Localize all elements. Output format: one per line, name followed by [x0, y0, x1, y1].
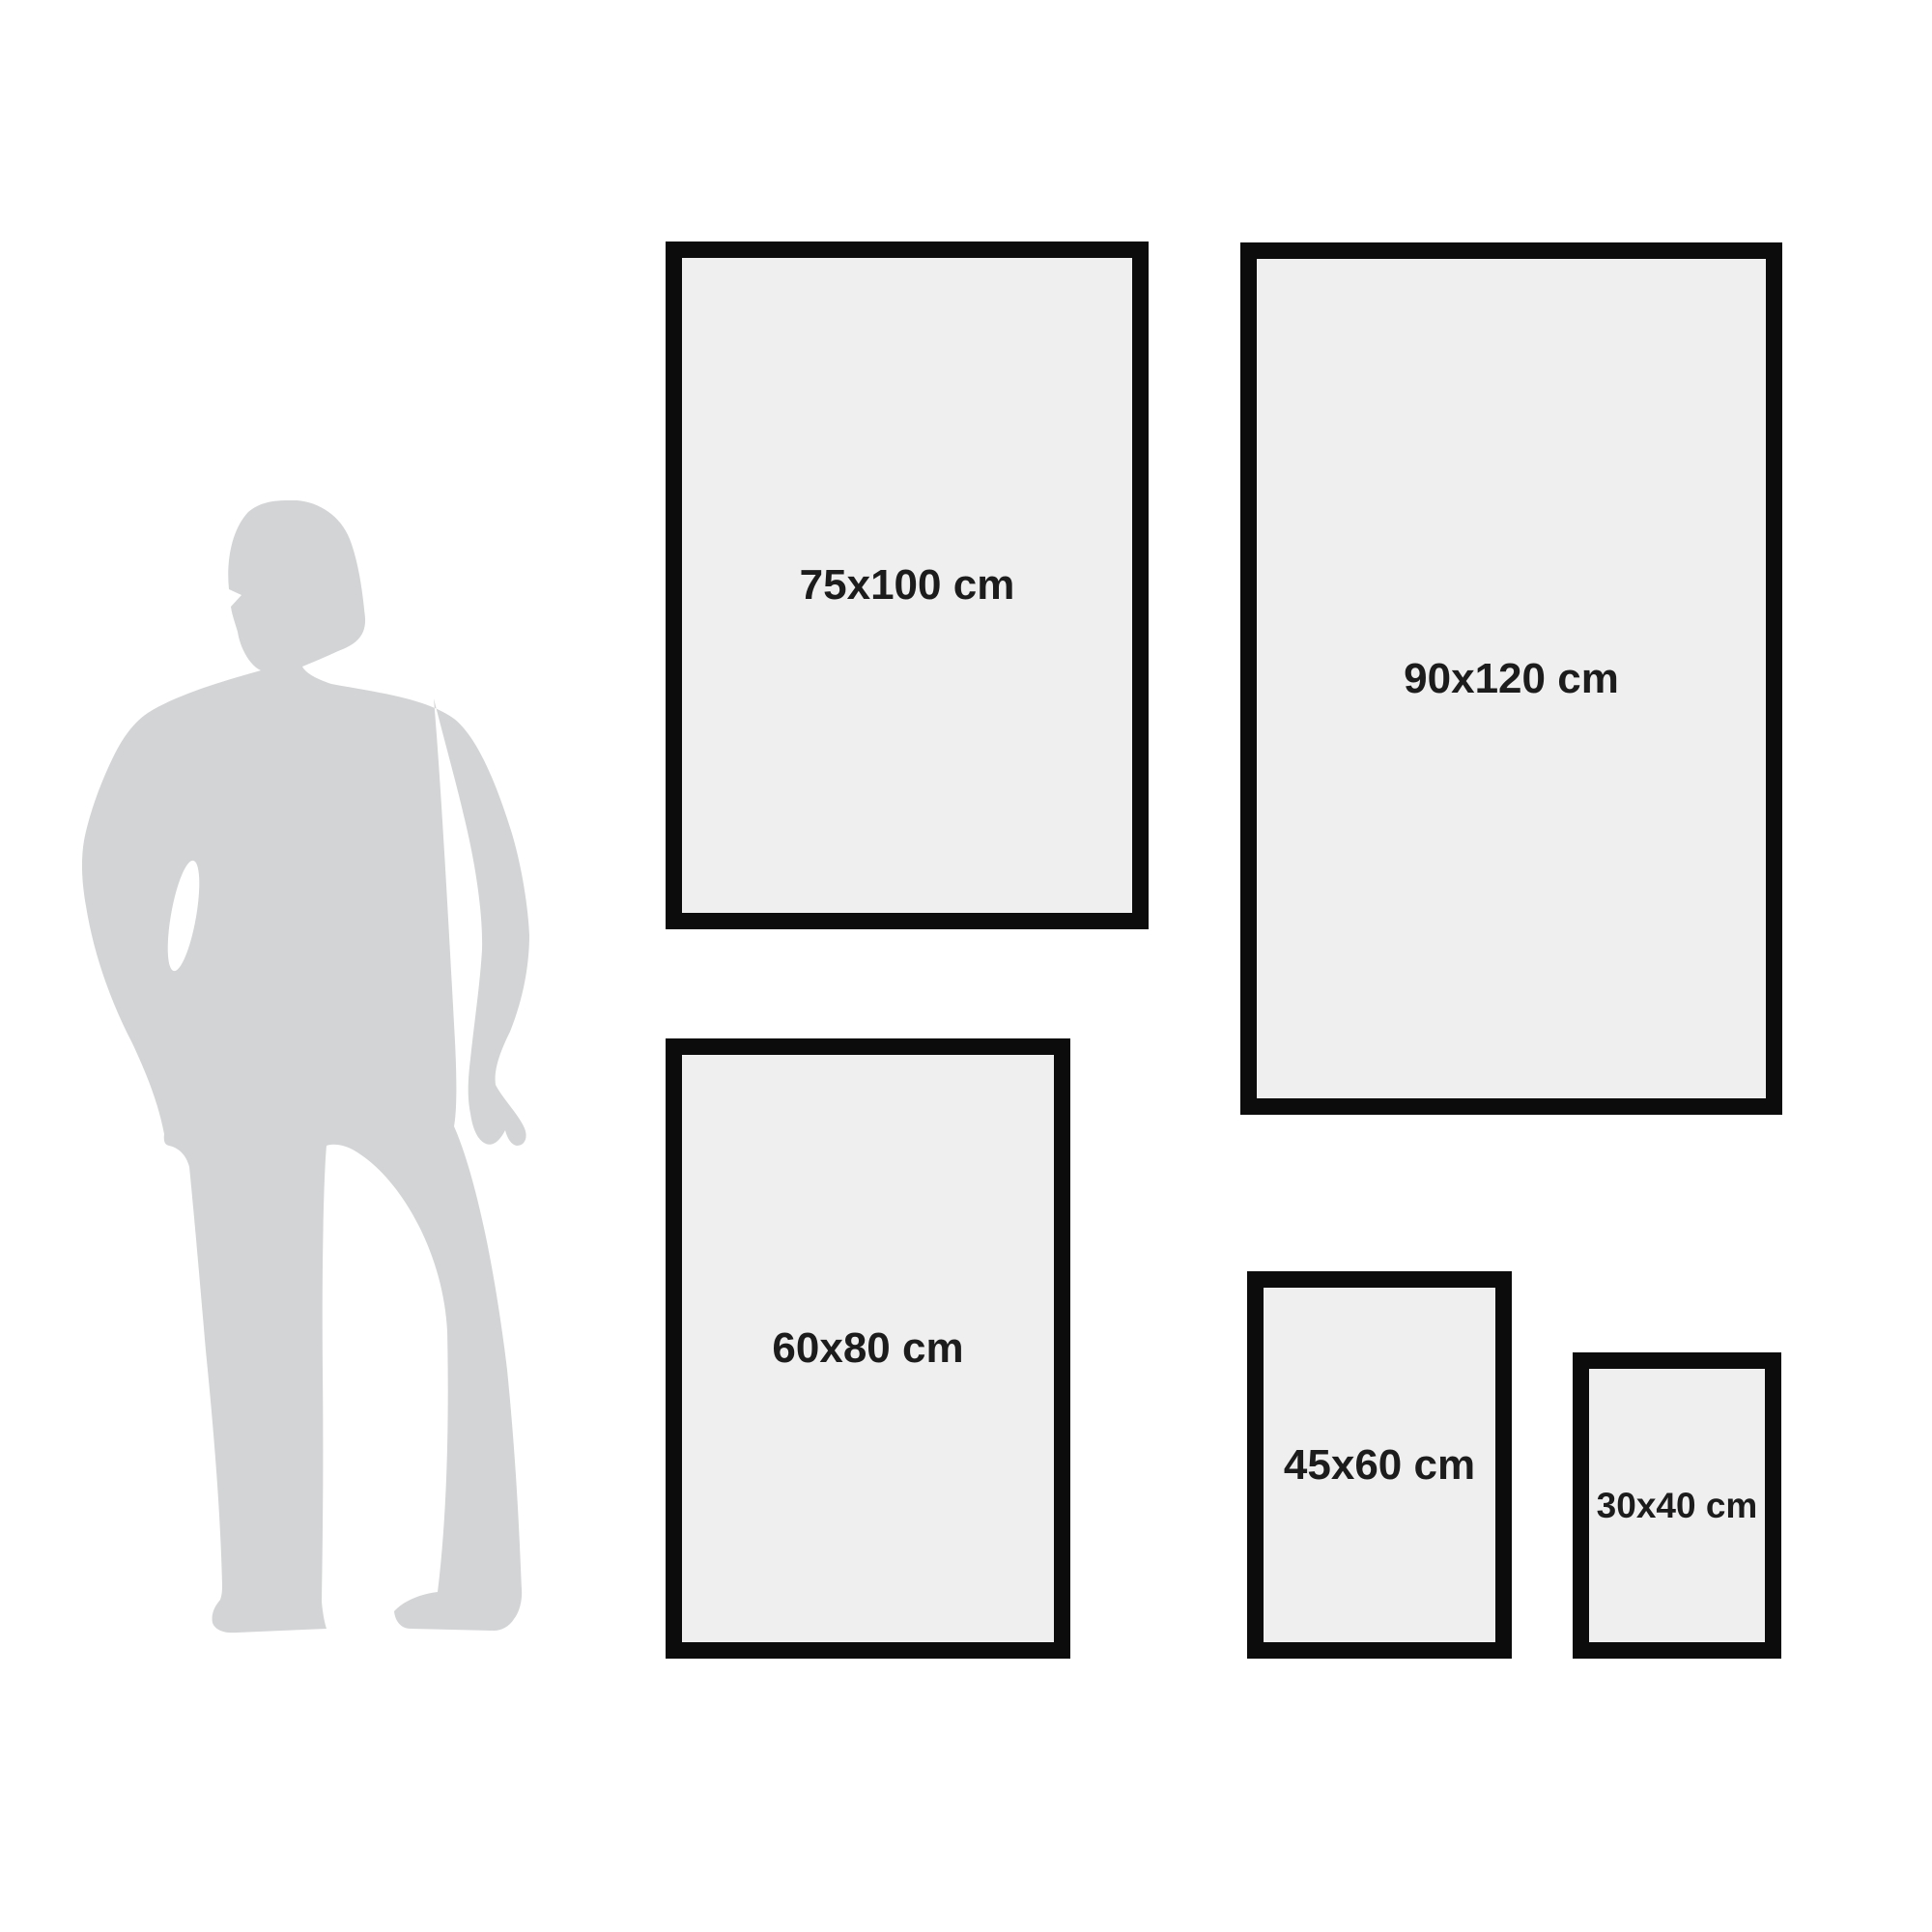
frame-size-label: 45x60 cm [1284, 1441, 1475, 1490]
frame-60x80: 60x80 cm [666, 1038, 1070, 1659]
frame-size-label: 90x120 cm [1404, 655, 1619, 703]
frame-30x40: 30x40 cm [1573, 1352, 1781, 1659]
person-silhouette [82, 500, 529, 1634]
frame-size-label: 60x80 cm [772, 1324, 963, 1373]
frame-90x120: 90x120 cm [1240, 242, 1782, 1115]
poster-size-comparison-diagram: 75x100 cm 90x120 cm 60x80 cm 45x60 cm 30… [0, 0, 1932, 1932]
frame-45x60: 45x60 cm [1247, 1271, 1512, 1659]
frame-size-label: 30x40 cm [1597, 1486, 1758, 1526]
frame-size-label: 75x100 cm [800, 561, 1015, 610]
frame-75x100: 75x100 cm [666, 241, 1149, 929]
